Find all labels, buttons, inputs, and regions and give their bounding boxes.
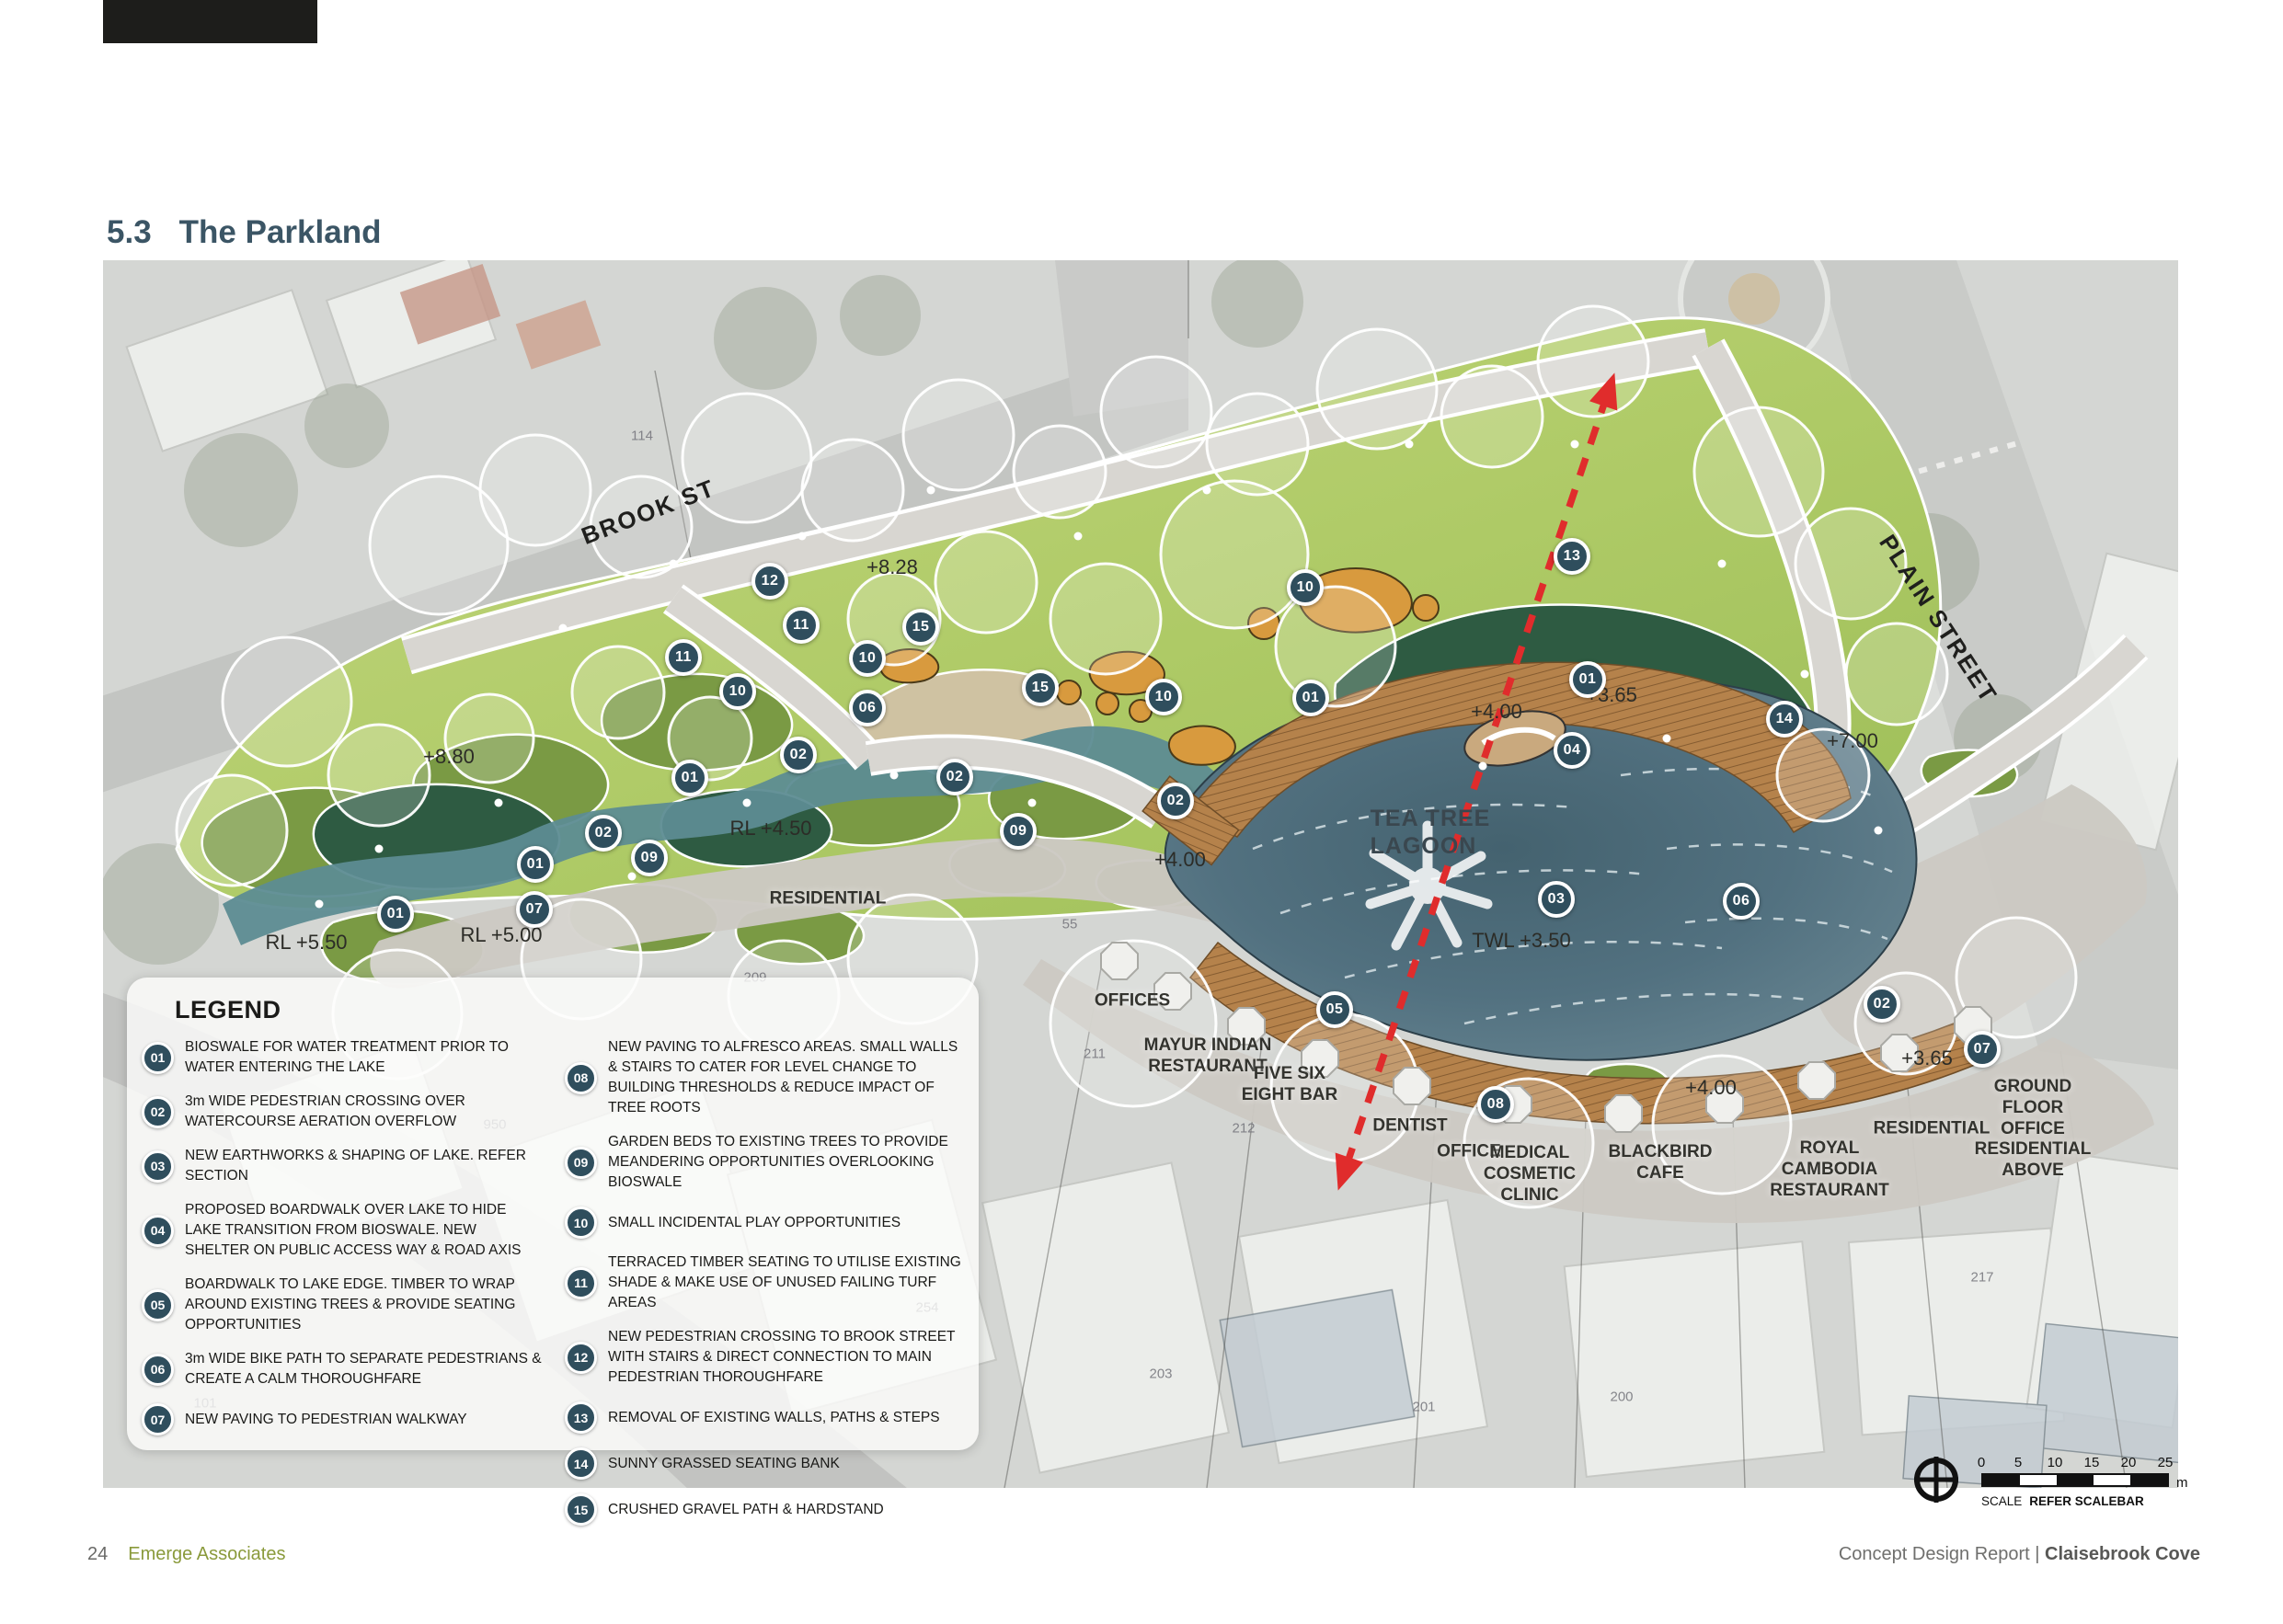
scalebar-tick: 20 <box>2121 1455 2137 1470</box>
legend-column-2: 08 NEW PAVING TO ALFRESCO AREAS. SMALL W… <box>565 1037 966 1539</box>
legend-item-number: 09 <box>565 1147 597 1179</box>
legend-item-text: CRUSHED GRAVEL PATH & HARDSTAND <box>608 1500 884 1520</box>
legend-item: 08 NEW PAVING TO ALFRESCO AREAS. SMALL W… <box>565 1037 966 1118</box>
legend-item-text: BIOSWALE FOR WATER TREATMENT PRIOR TO WA… <box>185 1037 543 1078</box>
legend-item-number: 02 <box>142 1096 174 1128</box>
legend-item-number: 07 <box>142 1403 174 1435</box>
legend-item-text: NEW PAVING TO PEDESTRIAN WALKWAY <box>185 1410 467 1430</box>
legend-item-number: 05 <box>142 1289 174 1321</box>
scalebar-caption: SCALEREFER SCALEBAR <box>1981 1494 2211 1508</box>
report-title: Concept Design Report | <box>1839 1544 2045 1564</box>
legend-item: 06 3m WIDE BIKE PATH TO SEPARATE PEDESTR… <box>142 1349 543 1390</box>
legend-item-number: 11 <box>565 1267 597 1299</box>
legend-item: 10 SMALL INCIDENTAL PLAY OPPORTUNITIES <box>565 1207 966 1239</box>
footer-right: Concept Design Report | Claisebrook Cove <box>1839 1544 2200 1565</box>
legend-item: 01 BIOSWALE FOR WATER TREATMENT PRIOR TO… <box>142 1037 543 1078</box>
legend-item: 02 3m WIDE PEDESTRIAN CROSSING OVER WATE… <box>142 1092 543 1132</box>
legend-item-text: 3m WIDE BIKE PATH TO SEPARATE PEDESTRIAN… <box>185 1349 543 1390</box>
section-number: 5.3 <box>107 214 152 251</box>
legend-item-text: REMOVAL OF EXISTING WALLS, PATHS & STEPS <box>608 1408 940 1428</box>
legend-item-number: 15 <box>565 1493 597 1526</box>
legend-item-number: 06 <box>142 1354 174 1386</box>
scalebar: 0510152025 m SCALEREFER SCALEBAR <box>1981 1455 2211 1508</box>
legend-item-text: TERRACED TIMBER SEATING TO UTILISE EXIST… <box>608 1252 966 1313</box>
legend-item-text: SMALL INCIDENTAL PLAY OPPORTUNITIES <box>608 1213 901 1233</box>
scale-word: SCALE <box>1981 1494 2022 1508</box>
legend-item-number: 14 <box>565 1447 597 1480</box>
legend-panel: LEGEND 01 BIOSWALE FOR WATER TREATMENT P… <box>127 978 979 1450</box>
legend-item-text: NEW PEDESTRIAN CROSSING TO BROOK STREET … <box>608 1327 966 1388</box>
scalebar-tick: 10 <box>2048 1455 2063 1470</box>
report-page: 5.3 The Parkland <box>0 0 2283 1624</box>
legend-title: LEGEND <box>175 996 979 1024</box>
north-and-scale: 0510152025 m SCALEREFER SCALEBAR <box>1910 1455 2211 1508</box>
legend-item: 11 TERRACED TIMBER SEATING TO UTILISE EX… <box>565 1252 966 1313</box>
legend-item: 05 BOARDWALK TO LAKE EDGE. TIMBER TO WRA… <box>142 1275 543 1335</box>
section-title: The Parkland <box>179 214 382 251</box>
footer-left: 24Emerge Associates <box>87 1544 285 1565</box>
legend-item-number: 04 <box>142 1215 174 1247</box>
scalebar-tick: 15 <box>2084 1455 2100 1470</box>
legend-item: 09 GARDEN BEDS TO EXISTING TREES TO PROV… <box>565 1132 966 1193</box>
scalebar-tick: 25 <box>2158 1455 2174 1470</box>
legend-item-number: 12 <box>565 1342 597 1374</box>
north-icon <box>1910 1455 1963 1508</box>
legend-item-text: SUNNY GRASSED SEATING BANK <box>608 1454 840 1474</box>
legend-item-text: NEW PAVING TO ALFRESCO AREAS. SMALL WALL… <box>608 1037 966 1118</box>
legend-item: 04 PROPOSED BOARDWALK OVER LAKE TO HIDE … <box>142 1200 543 1261</box>
legend-item-text: BOARDWALK TO LAKE EDGE. TIMBER TO WRAP A… <box>185 1275 543 1335</box>
page-number: 24 <box>87 1544 108 1564</box>
legend-item-number: 01 <box>142 1042 174 1074</box>
legend-item: 15 CRUSHED GRAVEL PATH & HARDSTAND <box>565 1493 966 1526</box>
scalebar-unit: m <box>2176 1475 2188 1491</box>
scale-ref: REFER SCALEBAR <box>2029 1494 2144 1508</box>
legend-item-number: 10 <box>565 1207 597 1239</box>
corner-tab <box>103 0 317 43</box>
legend-item: 13 REMOVAL OF EXISTING WALLS, PATHS & ST… <box>565 1401 966 1434</box>
page-title: 5.3 The Parkland <box>107 214 381 251</box>
legend-item-number: 13 <box>565 1401 597 1434</box>
company-name: Emerge Associates <box>128 1544 285 1564</box>
legend-column-1: 01 BIOSWALE FOR WATER TREATMENT PRIOR TO… <box>142 1037 543 1539</box>
scalebar-tick: 5 <box>2014 1455 2022 1470</box>
legend-item: 14 SUNNY GRASSED SEATING BANK <box>565 1447 966 1480</box>
legend-item-text: 3m WIDE PEDESTRIAN CROSSING OVER WATERCO… <box>185 1092 543 1132</box>
legend-item: 12 NEW PEDESTRIAN CROSSING TO BROOK STRE… <box>565 1327 966 1388</box>
legend-item-text: GARDEN BEDS TO EXISTING TREES TO PROVIDE… <box>608 1132 966 1193</box>
legend-item-number: 03 <box>142 1150 174 1183</box>
scalebar-bar <box>1981 1473 2169 1487</box>
legend-item-text: NEW EARTHWORKS & SHAPING OF LAKE. REFER … <box>185 1146 543 1186</box>
scalebar-tick: 0 <box>1978 1455 1985 1470</box>
legend-item: 07 NEW PAVING TO PEDESTRIAN WALKWAY <box>142 1403 543 1435</box>
legend-item: 03 NEW EARTHWORKS & SHAPING OF LAKE. REF… <box>142 1146 543 1186</box>
legend-item-text: PROPOSED BOARDWALK OVER LAKE TO HIDE LAK… <box>185 1200 543 1261</box>
scalebar-ticks: 0510152025 <box>1981 1455 2211 1473</box>
legend-item-number: 08 <box>565 1062 597 1094</box>
report-name: Claisebrook Cove <box>2045 1544 2200 1564</box>
